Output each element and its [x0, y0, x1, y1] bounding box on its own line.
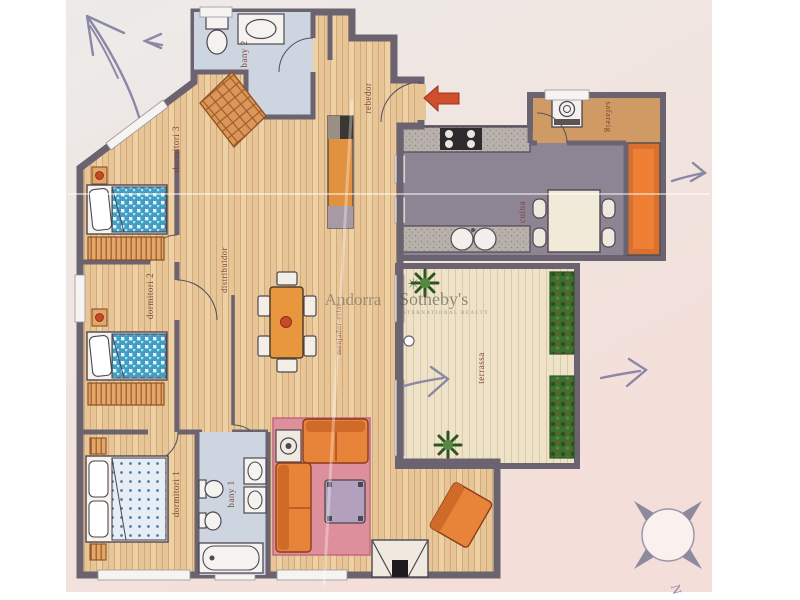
- nightstand: [92, 309, 107, 326]
- room-label-rebedor: rebedor: [363, 83, 373, 114]
- nightstand: [92, 167, 107, 184]
- wardrobe: [88, 237, 164, 260]
- sink-faucet: [471, 228, 475, 232]
- window-bottom: [277, 570, 347, 580]
- pantry-cabinet-front: [633, 149, 654, 249]
- floorplan-svg: bany 2: [0, 0, 800, 600]
- single-bed: [87, 185, 167, 234]
- side-table: [276, 430, 301, 462]
- room-label-bany2: bany 2: [239, 40, 249, 67]
- single-bed: [87, 332, 167, 380]
- sofa: [276, 463, 311, 552]
- planter-box: [550, 272, 574, 354]
- room-label-bany1: bany 1: [226, 480, 236, 507]
- nightstand: [90, 438, 106, 454]
- floorplan-photo: bany 2: [0, 0, 800, 600]
- watermark-sub: INTERNATIONAL REALTY: [399, 311, 489, 316]
- bathroom-sink: [238, 14, 284, 44]
- wardrobe: [88, 383, 164, 405]
- window-left: [75, 275, 85, 322]
- watermark-sothebys: Sotheby's: [399, 289, 468, 309]
- room-label-cuina: cuina: [517, 201, 527, 223]
- pillow: [89, 501, 108, 537]
- kitchen-table: [548, 190, 600, 252]
- room-dormitori1: dormitori 1: [86, 438, 181, 560]
- planter-box: [550, 376, 574, 458]
- room-label-dormitori3: dormitori 3: [171, 126, 181, 172]
- pillow: [89, 335, 112, 377]
- bidet: [199, 512, 221, 530]
- room-label-distribuidor: distribuidor: [219, 247, 229, 293]
- bathtub: [199, 543, 263, 573]
- toilet: [199, 480, 223, 498]
- sofa: [303, 419, 368, 463]
- table-centerpiece: [281, 317, 292, 328]
- tv-stand: [372, 540, 428, 577]
- terrace-light: [404, 336, 414, 346]
- watermark-andorra: Andorra: [325, 290, 382, 309]
- nightstand: [90, 544, 106, 560]
- window-bottom: [98, 570, 190, 580]
- washing-machine: [552, 97, 582, 127]
- pillow: [89, 461, 108, 497]
- plant-pot: [435, 432, 461, 458]
- room-label-terrassa: terrassa: [476, 352, 486, 383]
- bany2-window: [200, 7, 232, 17]
- sink-bowl: [474, 228, 496, 250]
- double-bed: [86, 456, 168, 542]
- toilet: [206, 14, 228, 54]
- room-label-dormitori1: dormitori 1: [171, 471, 181, 517]
- room-bany1: bany 1: [197, 432, 268, 575]
- sink-bowl: [451, 228, 473, 250]
- room-label-dormitori2: dormitori 2: [145, 273, 155, 319]
- room-label-safareig: safareig: [604, 102, 614, 133]
- safareig-window: [545, 90, 589, 100]
- entrance-opening: [416, 84, 426, 120]
